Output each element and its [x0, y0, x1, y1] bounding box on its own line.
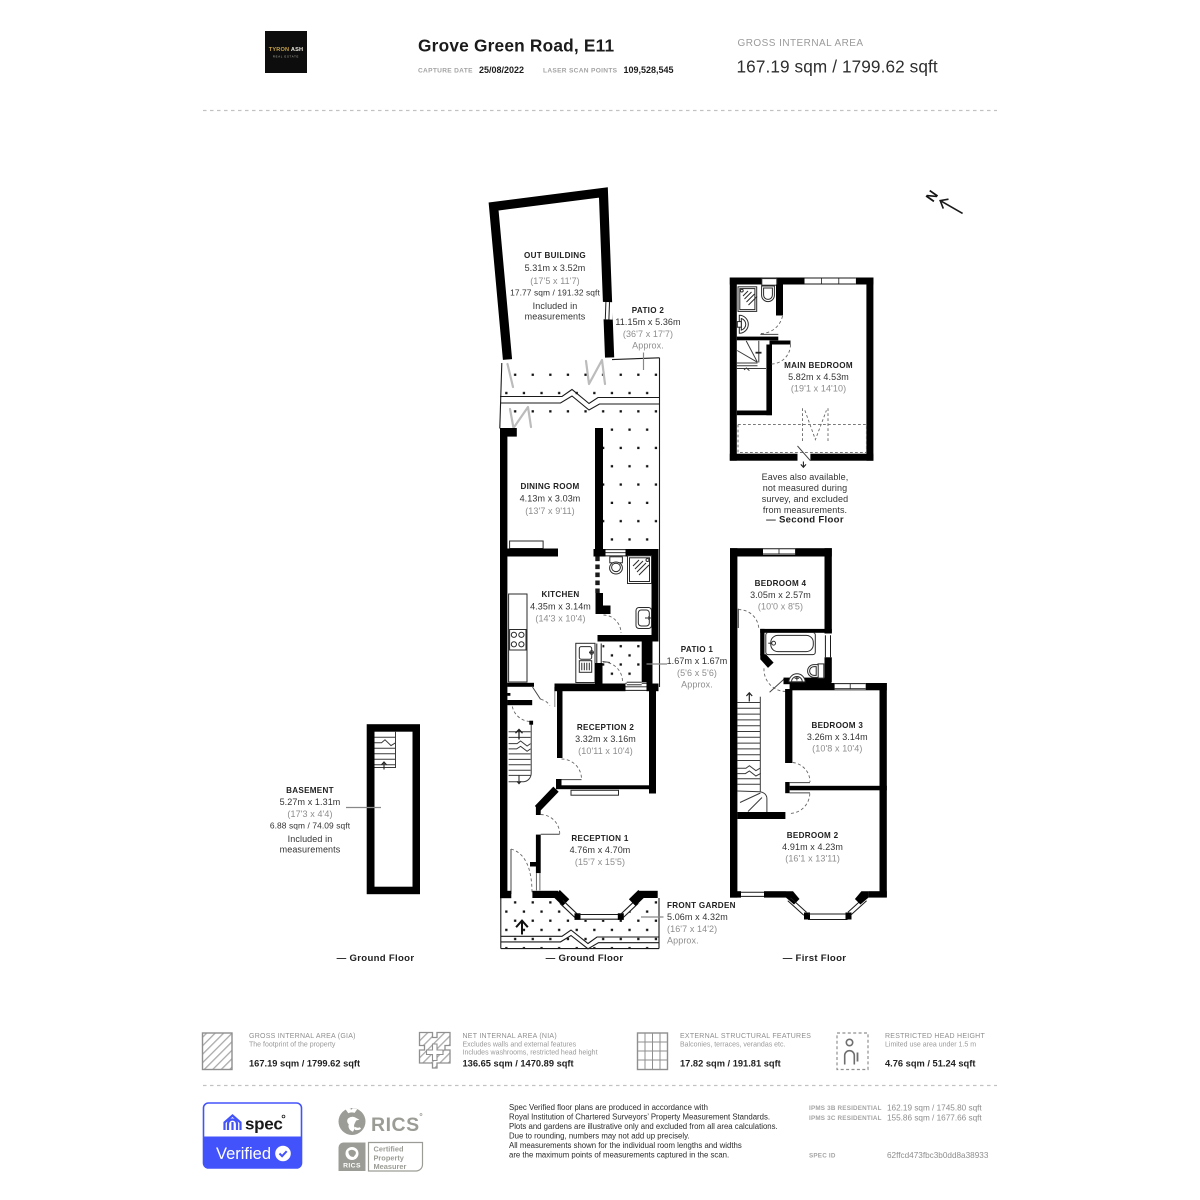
svg-text:EXTERNAL STRUCTURAL FEATURES: EXTERNAL STRUCTURAL FEATURES	[680, 1033, 811, 1040]
svg-text:109,528,545: 109,528,545	[624, 65, 674, 75]
svg-text:Plots and gardens are illustra: Plots and gardens are illustrative only …	[509, 1122, 778, 1131]
svg-text:TYRON ASH: TYRON ASH	[269, 47, 304, 53]
svg-text:167.19 sqm / 1799.62 sqft: 167.19 sqm / 1799.62 sqft	[249, 1059, 360, 1069]
svg-text:from measurements.: from measurements.	[763, 505, 847, 515]
svg-text:survey, and excluded: survey, and excluded	[762, 494, 848, 504]
svg-text:(36'7 x 17'7): (36'7 x 17'7)	[623, 329, 673, 339]
svg-text:RECEPTION 2: RECEPTION 2	[577, 723, 634, 732]
svg-text:(19'1 x 14'10): (19'1 x 14'10)	[791, 384, 846, 394]
svg-text:(16'7 x 14'2): (16'7 x 14'2)	[667, 924, 717, 934]
svg-text:Excludes walls and external fe: Excludes walls and external features	[463, 1042, 577, 1049]
svg-text:PATIO 2: PATIO 2	[632, 306, 665, 315]
svg-text:measurements: measurements	[525, 312, 586, 322]
svg-text:BEDROOM 4: BEDROOM 4	[755, 579, 807, 588]
svg-text:Approx.: Approx.	[681, 680, 713, 690]
svg-text:— Ground Floor: — Ground Floor	[546, 953, 624, 964]
svg-text:spec: spec	[245, 1115, 283, 1134]
svg-text:Includes washrooms, restricted: Includes washrooms, restricted head heig…	[463, 1050, 598, 1057]
svg-text:— First Floor: — First Floor	[783, 953, 847, 964]
svg-text:(13'7 x 9'11): (13'7 x 9'11)	[525, 506, 575, 516]
svg-text:5.27m x 1.31m: 5.27m x 1.31m	[280, 797, 341, 807]
svg-text:NET INTERNAL AREA (NIA): NET INTERNAL AREA (NIA)	[463, 1033, 557, 1040]
svg-text:4.76m x 4.70m: 4.76m x 4.70m	[570, 845, 631, 855]
svg-text:SPEC ID: SPEC ID	[809, 1153, 836, 1160]
svg-text:167.19 sqm / 1799.62 sqft: 167.19 sqm / 1799.62 sqft	[737, 57, 938, 77]
svg-text:162.19 sqm / 1745.80 sqft: 162.19 sqm / 1745.80 sqft	[887, 1104, 982, 1113]
svg-text:Verified: Verified	[216, 1145, 271, 1163]
svg-text:Eaves also available,: Eaves also available,	[762, 472, 849, 482]
svg-text:All measurements shown for the: All measurements shown for the individua…	[509, 1141, 742, 1150]
svg-text:11.15m x 5.36m: 11.15m x 5.36m	[615, 317, 680, 327]
svg-text:Included in: Included in	[288, 834, 333, 844]
svg-text:The footprint of the property: The footprint of the property	[249, 1042, 336, 1049]
svg-text:Royal Institution of Chartered: Royal Institution of Chartered Surveyors…	[509, 1113, 770, 1122]
svg-text:4.35m x 3.14m: 4.35m x 3.14m	[530, 602, 591, 612]
svg-text:(10'0 x 8'5): (10'0 x 8'5)	[758, 602, 803, 612]
svg-text:BEDROOM 3: BEDROOM 3	[811, 721, 863, 730]
svg-text:3.32m x 3.16m: 3.32m x 3.16m	[575, 734, 636, 744]
svg-text:6.88 sqm / 74.09 sqft: 6.88 sqm / 74.09 sqft	[270, 821, 351, 831]
svg-text:REAL ESTATE: REAL ESTATE	[273, 55, 299, 59]
svg-text:MAIN BEDROOM: MAIN BEDROOM	[784, 361, 853, 370]
svg-text:5.31m x 3.52m: 5.31m x 3.52m	[525, 263, 586, 273]
svg-text:KITCHEN: KITCHEN	[541, 590, 579, 599]
svg-text:(16'1 x 13'11): (16'1 x 13'11)	[785, 854, 840, 864]
svg-text:3.05m x 2.57m: 3.05m x 2.57m	[750, 590, 811, 600]
svg-text:— Second Floor: — Second Floor	[766, 515, 844, 526]
svg-text:(15'7 x 15'5): (15'7 x 15'5)	[575, 857, 625, 867]
svg-text:Included in: Included in	[533, 301, 578, 311]
svg-text:25/08/2022: 25/08/2022	[479, 65, 524, 75]
svg-text:1.67m x 1.67m: 1.67m x 1.67m	[667, 656, 728, 666]
svg-text:DINING ROOM: DINING ROOM	[520, 482, 579, 491]
svg-text:4.13m x 3.03m: 4.13m x 3.03m	[520, 494, 581, 504]
svg-text:RESTRICTED HEAD HEIGHT: RESTRICTED HEAD HEIGHT	[885, 1033, 985, 1040]
svg-text:Approx.: Approx.	[632, 341, 664, 351]
svg-text:3.26m x 3.14m: 3.26m x 3.14m	[807, 732, 868, 742]
svg-text:(10'8 x 10'4): (10'8 x 10'4)	[812, 744, 862, 754]
svg-text:BASEMENT: BASEMENT	[286, 786, 334, 795]
svg-text:RICS: RICS	[343, 1163, 361, 1170]
svg-text:LASER SCAN POINTS: LASER SCAN POINTS	[543, 68, 618, 75]
svg-text:GROSS INTERNAL AREA (GIA): GROSS INTERNAL AREA (GIA)	[249, 1033, 356, 1040]
svg-text:Approx.: Approx.	[667, 936, 699, 946]
svg-text:GROSS INTERNAL AREA: GROSS INTERNAL AREA	[738, 38, 864, 49]
svg-text:measurements: measurements	[280, 845, 341, 855]
svg-text:136.65 sqm / 1470.89 sqft: 136.65 sqm / 1470.89 sqft	[463, 1059, 574, 1069]
svg-text:5.82m x 4.53m: 5.82m x 4.53m	[788, 372, 849, 382]
svg-text:IPMS 3B RESIDENTIAL: IPMS 3B RESIDENTIAL	[809, 1105, 882, 1112]
svg-text:CAPTURE DATE: CAPTURE DATE	[418, 68, 473, 75]
svg-text:Certified: Certified	[374, 1145, 404, 1154]
svg-text:— Ground Floor: — Ground Floor	[337, 953, 415, 964]
svg-text:5.06m x 4.32m: 5.06m x 4.32m	[667, 912, 728, 922]
svg-text:RICS: RICS	[371, 1114, 420, 1136]
svg-text:4.91m x 4.23m: 4.91m x 4.23m	[782, 842, 843, 852]
svg-text:PATIO 1: PATIO 1	[681, 645, 714, 654]
svg-text:Balconies, terraces, verandas: Balconies, terraces, verandas etc.	[680, 1042, 785, 1049]
svg-text:RECEPTION 1: RECEPTION 1	[571, 834, 628, 843]
svg-text:Measurer: Measurer	[374, 1162, 407, 1171]
svg-text:(17'5 x 11'7): (17'5 x 11'7)	[530, 276, 580, 286]
svg-text:Due to rounding, numbers may n: Due to rounding, numbers may not add up …	[509, 1132, 690, 1141]
svg-text:155.86 sqm / 1677.66 sqft: 155.86 sqm / 1677.66 sqft	[887, 1114, 982, 1123]
svg-text:IPMS 3C RESIDENTIAL: IPMS 3C RESIDENTIAL	[809, 1115, 882, 1122]
svg-text:BEDROOM 2: BEDROOM 2	[787, 831, 839, 840]
svg-text:not measured during: not measured during	[763, 483, 847, 493]
svg-text:(10'11 x 10'4): (10'11 x 10'4)	[578, 746, 633, 756]
svg-text:Spec Verified floor plans are: Spec Verified floor plans are produced i…	[509, 1103, 708, 1112]
svg-text:FRONT GARDEN: FRONT GARDEN	[667, 901, 736, 910]
svg-text:Limited use area under 1.5 m: Limited use area under 1.5 m	[885, 1042, 976, 1049]
svg-text:62ffcd473fbc3b0dd8a38933: 62ffcd473fbc3b0dd8a38933	[887, 1151, 989, 1160]
svg-text:are the maximum points of meas: are the maximum points of measurements c…	[509, 1151, 729, 1160]
svg-text:OUT BUILDING: OUT BUILDING	[524, 251, 586, 260]
svg-text:17.77 sqm / 191.32 sqft: 17.77 sqm / 191.32 sqft	[510, 288, 600, 298]
svg-text:4.76 sqm / 51.24 sqft: 4.76 sqm / 51.24 sqft	[885, 1059, 975, 1069]
svg-text:Grove Green Road, E11: Grove Green Road, E11	[418, 36, 614, 56]
svg-text:(5'6 x 5'6): (5'6 x 5'6)	[677, 668, 717, 678]
svg-text:17.82 sqm / 191.81 sqft: 17.82 sqm / 191.81 sqft	[680, 1059, 781, 1069]
svg-text:(17'3 x 4'4): (17'3 x 4'4)	[287, 809, 332, 819]
svg-text:(14'3 x 10'4): (14'3 x 10'4)	[535, 614, 585, 624]
